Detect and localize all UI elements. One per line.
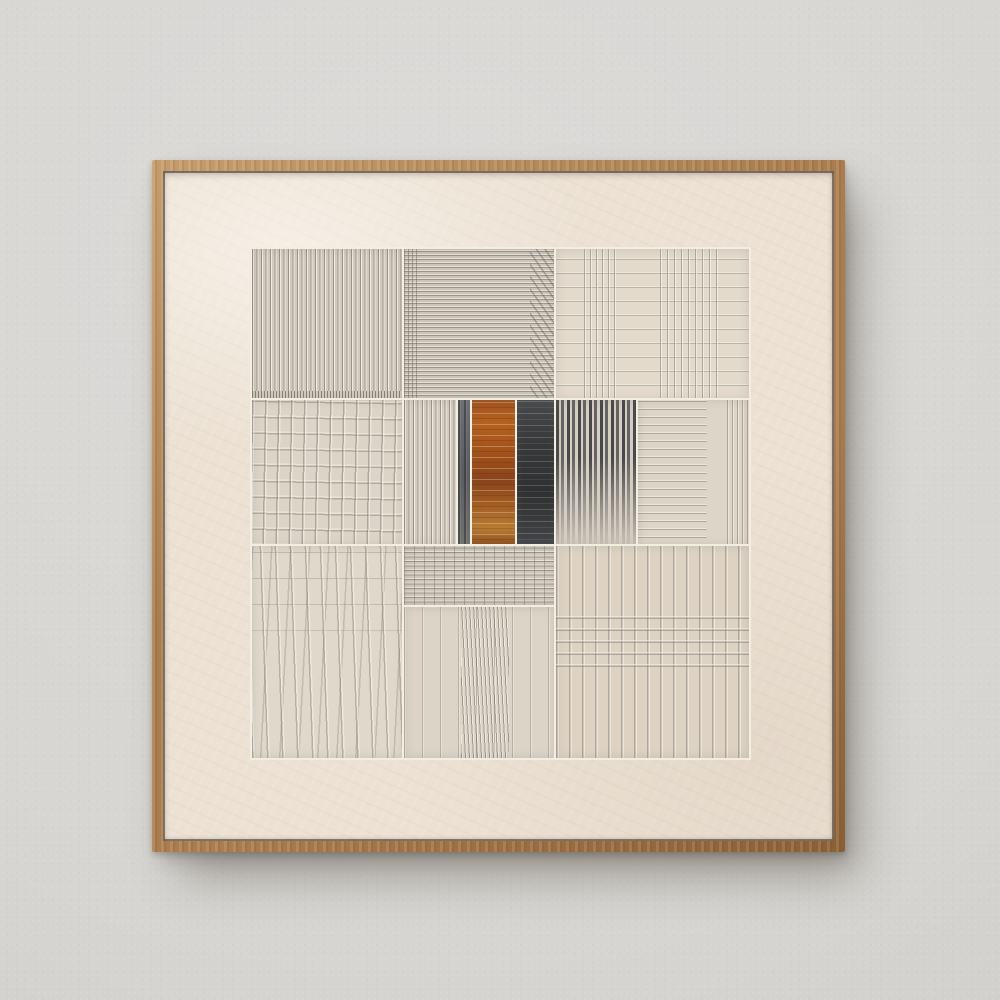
panel-top-center bbox=[404, 249, 556, 400]
panel-accent-orange bbox=[472, 400, 517, 546]
panel-mid-center-left bbox=[404, 400, 458, 546]
panel-mid-right bbox=[638, 400, 749, 546]
panel-bottom-center-top bbox=[404, 546, 556, 607]
panel-mid-left bbox=[252, 400, 404, 546]
panel-bottom-center bbox=[404, 607, 556, 758]
panel-mid-dark-strip bbox=[458, 400, 472, 546]
canvas bbox=[163, 171, 834, 841]
panel-top-right bbox=[556, 249, 749, 400]
wall bbox=[0, 0, 1000, 1000]
art-grid bbox=[252, 249, 749, 758]
panel-mid-stripes-dark bbox=[556, 400, 638, 546]
panel-top-left bbox=[252, 249, 404, 400]
artwork-frame bbox=[152, 160, 845, 852]
panel-bottom-left bbox=[252, 546, 404, 758]
panel-bottom-right bbox=[556, 546, 749, 758]
panel-accent-charcoal bbox=[517, 400, 556, 546]
